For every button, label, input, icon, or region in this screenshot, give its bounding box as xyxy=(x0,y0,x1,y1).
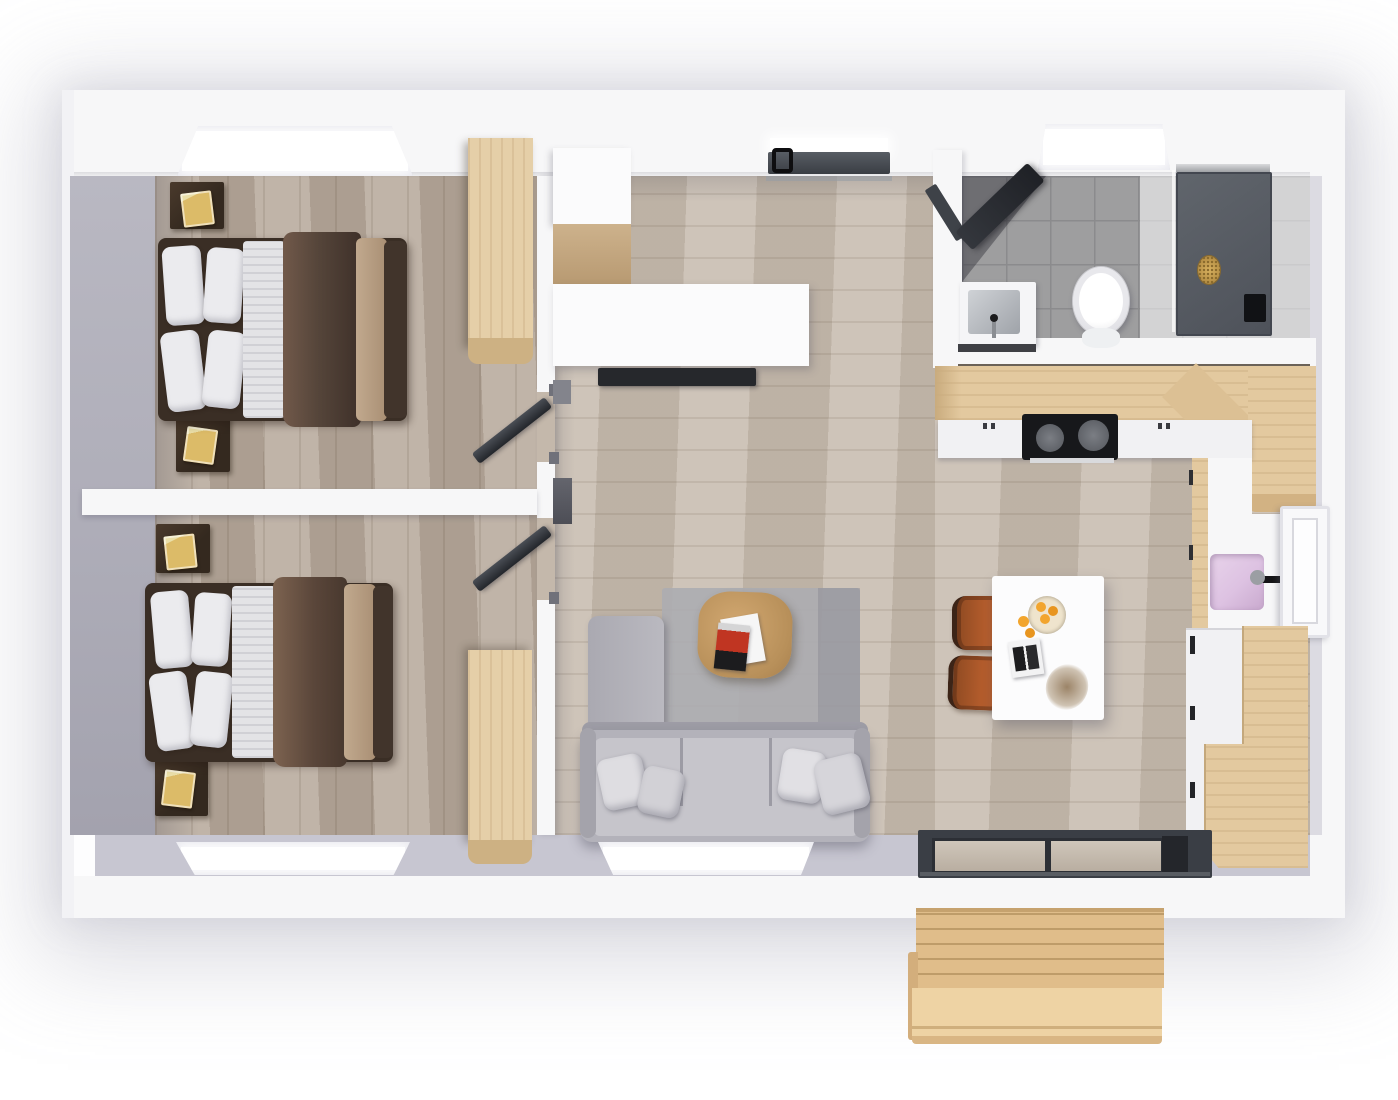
cabinet-handle-1b xyxy=(991,423,995,429)
oven-front-strip xyxy=(1030,458,1114,463)
deck-step-line xyxy=(912,1026,1162,1029)
bed2-blanket xyxy=(273,577,347,767)
bed1-pillow-1 xyxy=(161,245,205,327)
cooktop-burner-left xyxy=(1036,424,1064,452)
shower-drain xyxy=(1198,256,1220,284)
hall-tall-cabinet xyxy=(553,148,631,224)
entry-door-handle xyxy=(772,148,793,173)
bed2-pillow-1 xyxy=(150,589,195,669)
bedroom1-book-bottom xyxy=(183,426,219,465)
cabinet-handle-3a xyxy=(1158,423,1162,429)
door-jamb-2 xyxy=(549,452,559,464)
kitchen-faucet-base xyxy=(1250,570,1265,585)
fruit-orange-2 xyxy=(1048,606,1058,616)
strip-handle-2 xyxy=(1189,545,1193,560)
shower-glass-screen xyxy=(1172,170,1175,332)
bed2-pillow-2 xyxy=(190,592,232,667)
door-jamb-3 xyxy=(549,592,559,604)
sofa-arm-left xyxy=(580,728,596,838)
oven-handle-2 xyxy=(1190,706,1195,720)
bed1-footboard xyxy=(384,241,407,418)
kitchen-counter-left-end xyxy=(935,366,961,420)
shower-top-rail xyxy=(1176,164,1270,172)
bedroom1-book-top xyxy=(180,190,215,228)
bathroom-vanity-edge xyxy=(958,344,1036,352)
wall-dark-panel xyxy=(553,478,572,524)
living-rug-shade xyxy=(818,588,860,728)
island-magazine-print xyxy=(1012,644,1039,671)
entry-threshold xyxy=(766,176,892,181)
deck-step xyxy=(912,988,1162,1040)
bed1-pillow-4 xyxy=(201,329,247,410)
hall-cabinet-wood-top xyxy=(553,224,631,284)
bed2-throw xyxy=(344,584,376,760)
sideboard-end-shadow xyxy=(553,380,571,404)
kitchen-counter-right-run xyxy=(1248,366,1316,498)
sliding-door-track xyxy=(920,872,1210,876)
shower-caddy xyxy=(1244,294,1266,322)
sliding-door-end-panel xyxy=(1162,836,1188,872)
bedroom2-wardrobe-base xyxy=(468,840,532,864)
strip-handle-1 xyxy=(1189,470,1193,485)
fruit-orange-1 xyxy=(1036,602,1046,612)
fruit-orange-loose-1 xyxy=(1018,616,1029,627)
cabinet-handle-3b xyxy=(1166,423,1170,429)
cabinet-handle-1a xyxy=(983,423,987,429)
bathroom-faucet-stem xyxy=(992,322,996,338)
bedroom2-wardrobe xyxy=(468,650,532,846)
bed2-footboard xyxy=(373,586,393,758)
oven-handle-1 xyxy=(1190,636,1195,654)
toilet-base xyxy=(1082,328,1120,348)
bedroom-divider-wall xyxy=(82,489,537,515)
bathroom-skylight xyxy=(1038,124,1170,170)
kitchen-window-inner xyxy=(1292,518,1318,624)
bedroom2-book-bottom xyxy=(161,769,196,809)
sliding-door-pane-2 xyxy=(1048,838,1164,874)
bedroom2-book-top xyxy=(163,533,197,570)
bed1-blanket xyxy=(283,232,361,427)
fridge-cabinet-upper xyxy=(1242,626,1308,762)
bed2-pillow-4 xyxy=(189,670,234,748)
oven-handle-3 xyxy=(1190,782,1195,798)
coffee-table-magazine-red xyxy=(714,622,751,671)
deck-step-edge xyxy=(912,1036,1162,1044)
cooktop-burner-right xyxy=(1078,420,1109,451)
sliding-door-pane-1 xyxy=(932,838,1048,874)
tv-panel xyxy=(598,368,756,386)
deck-platform xyxy=(916,912,1164,988)
bed1-sheet xyxy=(243,241,285,418)
toilet-bowl xyxy=(1072,266,1130,336)
bedroom2-window xyxy=(176,842,410,875)
fridge-cabinet-lower xyxy=(1204,744,1308,868)
bedroom1-wardrobe-base xyxy=(468,338,533,364)
bed1-throw xyxy=(356,238,387,421)
bedroom1-wardrobe xyxy=(468,138,533,344)
sofa-front-edge xyxy=(594,806,858,836)
floor-plan-render xyxy=(0,0,1398,1100)
bathroom-west-wall xyxy=(933,150,962,342)
bed1-pillow-2 xyxy=(202,247,245,324)
fruit-orange-3 xyxy=(1040,614,1050,624)
hall-sideboard xyxy=(553,284,809,366)
bedroom1-window xyxy=(177,126,413,176)
fruit-orange-loose-2 xyxy=(1025,628,1035,638)
living-window xyxy=(598,842,814,875)
bathroom-faucet xyxy=(990,314,998,322)
bed2-sheet xyxy=(232,586,276,758)
